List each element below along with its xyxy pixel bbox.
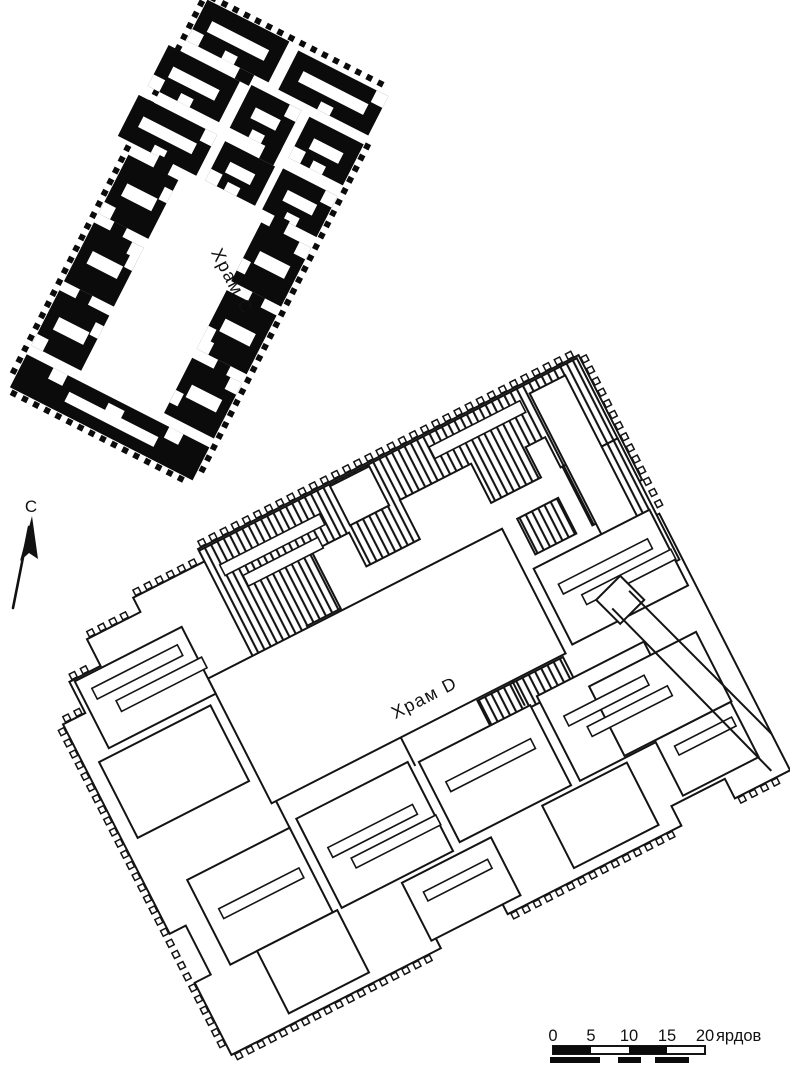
crenellation-tooth	[655, 500, 663, 508]
crenellation-tooth	[204, 454, 212, 462]
crenellation-tooth	[210, 443, 218, 451]
crenellation-tooth	[106, 178, 114, 186]
crenellation-tooth	[310, 45, 318, 53]
crenellation-tooth	[38, 311, 46, 319]
crenellation-tooth	[10, 367, 18, 375]
crenellation-tooth	[88, 429, 96, 437]
crenellation-tooth	[44, 300, 52, 308]
crenellation-tooth	[72, 244, 80, 252]
scale-tick-20: 20	[696, 1027, 714, 1045]
crenellation-tooth	[180, 33, 188, 41]
crenellation-tooth	[365, 74, 373, 82]
crenellation-tooth	[132, 452, 140, 460]
crenellation-tooth	[261, 343, 269, 351]
crenellation-tooth	[321, 51, 329, 59]
crenellation-tooth	[357, 154, 365, 162]
crenellation-tooth	[110, 441, 118, 449]
crenellation-tooth	[10, 390, 18, 398]
crenellation-tooth	[255, 354, 263, 362]
scale-bar: 0 5 10 15 20 ярдов	[548, 1027, 761, 1063]
crenellation-tooth	[177, 475, 185, 483]
crenellation-tooth	[298, 40, 306, 48]
crenellation-tooth	[363, 142, 371, 150]
crenellation-tooth	[346, 176, 354, 184]
crenellation-tooth	[376, 79, 384, 87]
crenellation-tooth	[295, 276, 303, 284]
crenellation-tooth	[43, 407, 51, 415]
north-indicator: С	[13, 497, 38, 608]
crenellation-tooth	[77, 424, 85, 432]
north-arrow-head	[20, 516, 38, 561]
crenellation-tooth	[335, 198, 343, 206]
scale-tick-15: 15	[658, 1027, 676, 1045]
scale-unit-label: ярдов	[716, 1027, 762, 1045]
crenellation-tooth	[186, 22, 194, 30]
crenellation-tooth	[178, 962, 186, 970]
crenellation-tooth	[329, 209, 337, 217]
crenellation-tooth	[276, 28, 284, 36]
crenellation-tooth	[306, 254, 314, 262]
crenellation-tooth	[32, 401, 40, 409]
crenellation-tooth	[32, 322, 40, 330]
crenellation-tooth	[267, 332, 275, 340]
plan-canvas: С 0 5 10 15 20 ярдов Храм С Храм D	[0, 0, 790, 1065]
temple-c-plan	[0, 0, 399, 490]
crenellation-tooth	[123, 144, 131, 152]
crenellation-tooth	[312, 243, 320, 251]
crenellation-tooth	[78, 233, 86, 241]
scale-tick-10: 10	[620, 1027, 638, 1045]
crenellation-tooth	[250, 365, 258, 373]
crenellation-tooth	[55, 278, 63, 286]
crenellation-tooth	[221, 0, 229, 8]
crenellation-tooth	[352, 165, 360, 173]
crenellation-tooth	[354, 68, 362, 76]
crenellation-tooth	[183, 973, 191, 981]
crenellation-tooth	[118, 155, 126, 163]
crenellation-tooth	[95, 200, 103, 208]
crenellation-tooth	[343, 62, 351, 70]
crenellation-tooth	[166, 939, 174, 947]
crenellation-tooth	[323, 220, 331, 228]
crenellation-tooth	[166, 469, 174, 477]
crenellation-tooth	[101, 189, 109, 197]
site-plan-figure: С 0 5 10 15 20 ярдов Храм С Храм D	[0, 0, 790, 1065]
crenellation-tooth	[191, 11, 199, 19]
crenellation-tooth	[65, 418, 73, 426]
scale-bar-segment-black-2	[629, 1046, 667, 1054]
crenellation-tooth	[89, 211, 97, 219]
crenellation-tooth	[61, 267, 69, 275]
crenellation-tooth	[278, 309, 286, 317]
crenellation-tooth	[54, 412, 62, 420]
scale-bar-lower-band	[550, 1057, 689, 1063]
crenellation-tooth	[340, 187, 348, 195]
crenellation-tooth	[197, 0, 205, 8]
crenellation-tooth	[332, 57, 340, 65]
crenellation-tooth	[643, 477, 651, 485]
crenellation-tooth	[21, 345, 29, 353]
crenellation-tooth	[198, 465, 206, 473]
crenellation-tooth	[21, 395, 29, 403]
crenellation-tooth	[216, 432, 224, 440]
crenellation-tooth	[233, 399, 241, 407]
crenellation-tooth	[99, 435, 107, 443]
scale-tick-5: 5	[586, 1027, 595, 1045]
crenellation-tooth	[649, 488, 657, 496]
crenellation-tooth	[27, 334, 35, 342]
crenellation-tooth	[301, 265, 309, 273]
crenellation-tooth	[154, 463, 162, 471]
scale-bar-lower-notch	[641, 1057, 655, 1063]
crenellation-tooth	[50, 289, 58, 297]
crenellation-tooth	[287, 34, 295, 42]
crenellation-tooth	[265, 23, 273, 31]
crenellation-tooth	[272, 321, 280, 329]
crenellation-tooth	[15, 356, 23, 364]
scale-bar-segment-black-1	[553, 1046, 591, 1054]
crenellation-tooth	[318, 231, 326, 239]
crenellation-tooth	[143, 458, 151, 466]
crenellation-tooth	[232, 6, 240, 14]
crenellation-tooth	[84, 222, 92, 230]
crenellation-tooth	[284, 298, 292, 306]
crenellation-tooth	[112, 166, 120, 174]
crenellation-tooth	[221, 421, 229, 429]
crenellation-tooth	[243, 11, 251, 19]
crenellation-tooth	[289, 287, 297, 295]
crenellation-tooth	[254, 17, 262, 25]
scale-tick-0: 0	[548, 1027, 557, 1045]
north-label: С	[25, 497, 37, 516]
crenellation-tooth	[172, 950, 180, 958]
crenellation-tooth	[121, 446, 129, 454]
crenellation-tooth	[227, 410, 235, 418]
scale-bar-lower-notch	[600, 1057, 618, 1063]
crenellation-tooth	[67, 256, 75, 264]
crenellation-tooth	[238, 387, 246, 395]
crenellation-tooth	[244, 376, 252, 384]
